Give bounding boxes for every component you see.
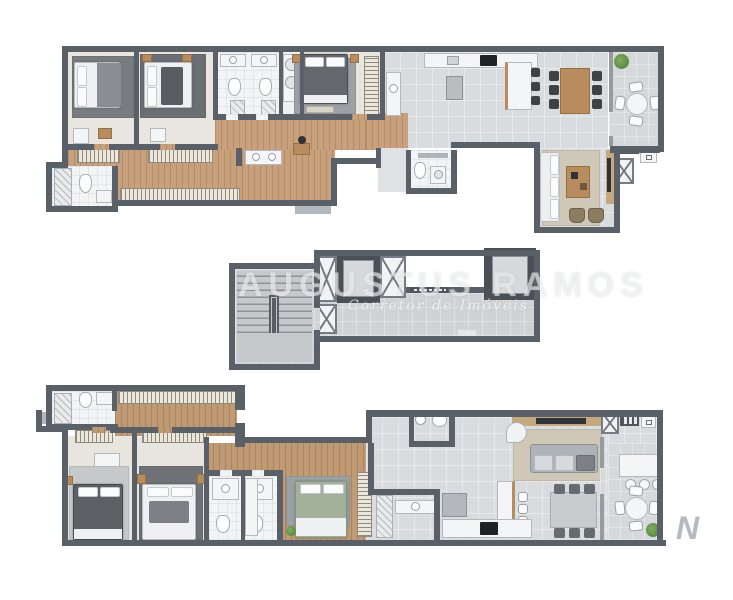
wall: [368, 443, 374, 495]
toilet: [216, 515, 230, 533]
bar-stool: [518, 492, 528, 502]
wall: [241, 476, 245, 540]
brand-logo-n: N: [676, 510, 699, 547]
bar-stool: [518, 504, 528, 514]
wall: [46, 385, 245, 391]
wall: [62, 540, 666, 546]
dining-chair: [554, 528, 565, 538]
wall: [112, 391, 117, 411]
wall: [46, 424, 118, 430]
door-opening: [220, 470, 232, 476]
hall-wardrobe: [118, 391, 237, 404]
sofa: [530, 444, 598, 473]
wall: [657, 417, 663, 546]
plant: [286, 526, 296, 536]
wall: [204, 437, 209, 540]
door-opening: [252, 470, 264, 476]
wall: [434, 495, 440, 540]
kitchen-island: [497, 481, 515, 524]
wall: [237, 437, 368, 443]
kitchen-cabinet: [442, 493, 467, 517]
dining-chair: [584, 484, 595, 494]
dining-chair: [584, 528, 595, 538]
tv: [536, 418, 586, 424]
closet-cabinet: [245, 478, 258, 536]
dining-chair: [569, 484, 580, 494]
dining-chair: [569, 528, 580, 538]
terrace-table: [625, 497, 648, 520]
terrace-chair: [629, 485, 644, 496]
cooktop: [480, 522, 498, 535]
wall: [277, 470, 283, 546]
door-opening: [92, 427, 106, 433]
dining-chair: [554, 484, 565, 494]
toilet: [79, 392, 92, 408]
terrace-chair: [629, 520, 644, 531]
wall: [110, 427, 237, 433]
dining-table: [550, 492, 597, 528]
sink: [411, 502, 420, 511]
bed: [295, 481, 347, 538]
terrace-chair: [614, 501, 625, 516]
door-opening: [158, 427, 172, 433]
vanity: [96, 392, 113, 405]
wall: [62, 430, 68, 546]
shower: [54, 393, 72, 424]
wall: [132, 430, 137, 540]
sink: [221, 484, 230, 493]
terrace-door: [600, 468, 604, 494]
shower: [376, 495, 393, 538]
watermark-subtitle: Corretor de Imóveis: [348, 298, 529, 314]
nightstand: [137, 474, 146, 484]
wall: [368, 489, 440, 495]
bed: [142, 484, 196, 540]
armchair: [506, 422, 527, 443]
wall: [235, 385, 245, 410]
wall: [409, 412, 414, 443]
floor-plan-image: AUGUSTUS RAMOS Corretor de Imóveis N: [0, 0, 733, 600]
bed: [73, 484, 123, 540]
wall: [449, 412, 455, 447]
